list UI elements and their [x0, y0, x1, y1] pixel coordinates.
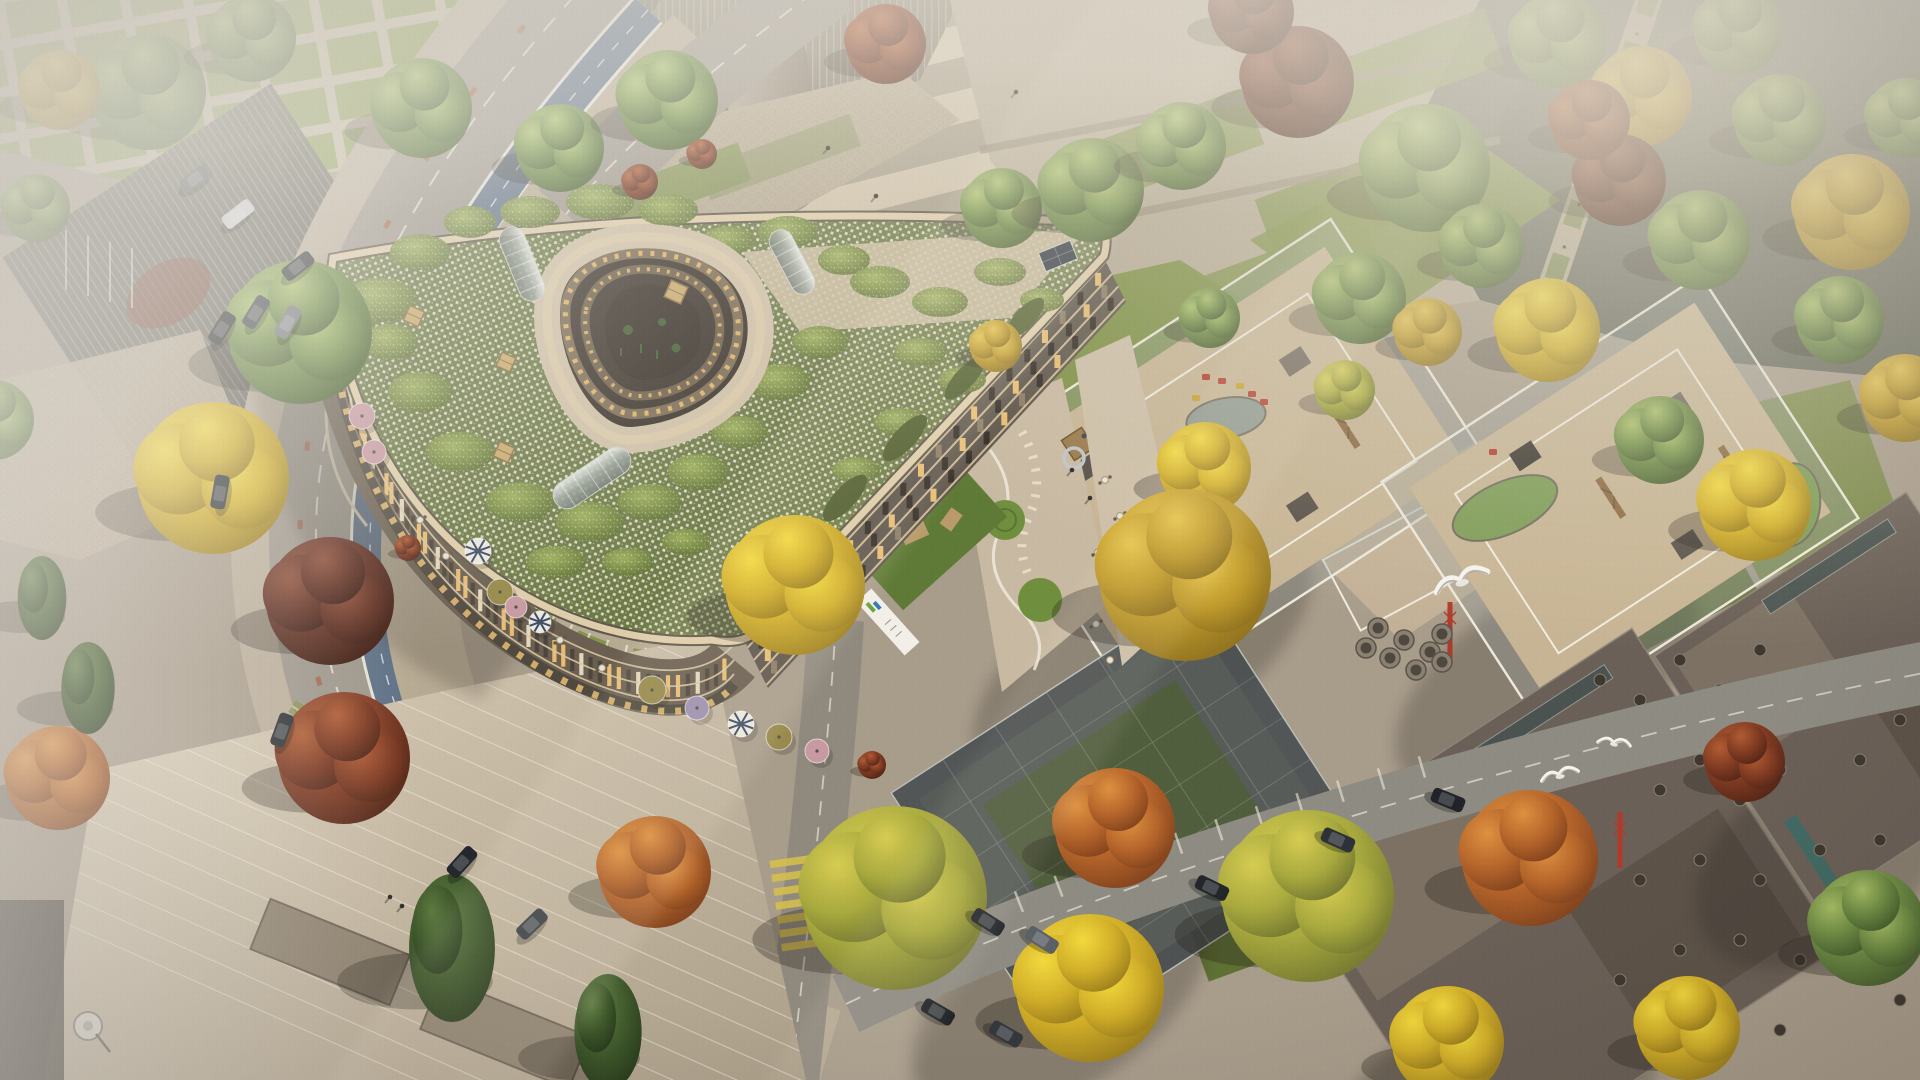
atmosphere	[0, 0, 1920, 1080]
aerial-city-render: Photorealistic aerial 3D rendering of an…	[0, 0, 1920, 1080]
render-canvas: Photorealistic aerial 3D rendering of an…	[0, 0, 1920, 1080]
